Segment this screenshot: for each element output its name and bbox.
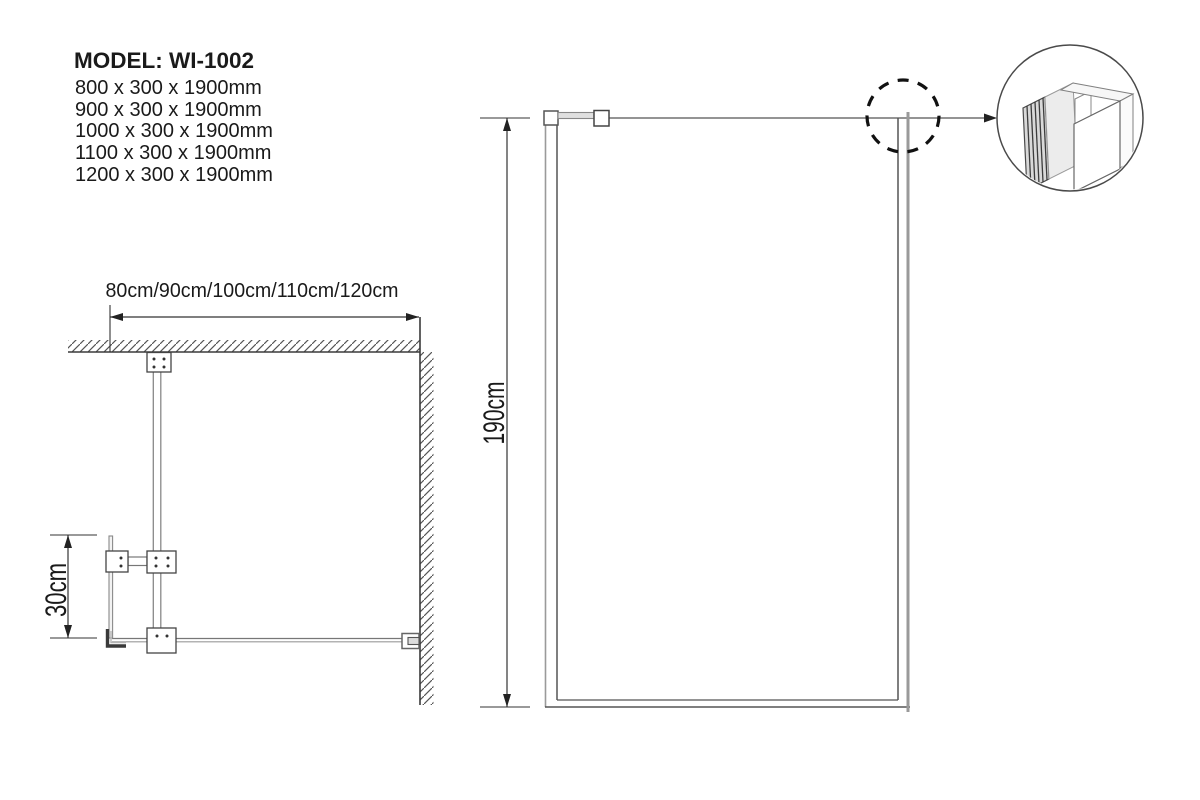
profile-top-cap [544, 111, 558, 125]
shower-screen-diagram: MODEL: WI-1002 800 x 300 x 1900mm 900 x … [0, 0, 1200, 800]
arrowhead-left-icon [110, 313, 123, 321]
size-option: 1200 x 300 x 1900mm [75, 164, 273, 186]
arrowhead-down-icon [503, 694, 511, 707]
wall-profile-isometric [1023, 83, 1133, 192]
support-bar-bracket-elevation [594, 111, 609, 127]
size-option: 1000 x 300 x 1900mm [75, 120, 273, 142]
arrowhead-up-icon [64, 535, 72, 548]
return-panel-bracket [106, 551, 128, 572]
wall-profile-plan [402, 634, 419, 649]
size-option: 1100 x 300 x 1900mm [75, 142, 271, 164]
height-dimension-label: 190cm [478, 382, 511, 445]
arrowhead-up-icon [503, 118, 511, 131]
title-block: MODEL: WI-1002 800 x 300 x 1900mm 900 x … [74, 48, 273, 186]
arrowhead-down-icon [64, 625, 72, 638]
return-depth-label: 30cm [40, 563, 73, 617]
support-bar-elevation [558, 113, 594, 119]
front-view: 190cm [478, 80, 997, 712]
wall-bracket [147, 353, 171, 373]
plan-view: 80cm/90cm/100cm/110cm/120cm 30cm [40, 280, 434, 705]
technical-drawing-page: MODEL: WI-1002 800 x 300 x 1900mm 900 x … [0, 0, 1200, 800]
size-option: 900 x 300 x 1900mm [75, 99, 262, 121]
size-option: 800 x 300 x 1900mm [75, 77, 262, 99]
panel-bracket [147, 628, 176, 653]
model-title: MODEL: WI-1002 [74, 48, 254, 73]
width-dimension-label: 80cm/90cm/100cm/110cm/120cm [106, 280, 399, 302]
detail-bubble [997, 45, 1143, 192]
right-wall-hatch [421, 352, 434, 705]
top-wall-hatch [68, 340, 420, 352]
arrowhead-right-icon [406, 313, 419, 321]
detail-arrowhead-icon [984, 114, 997, 123]
connector-bar-plan [128, 557, 147, 566]
support-bar-bracket [147, 551, 176, 573]
detail-locator-circle [867, 80, 939, 152]
return-depth-dimension: 30cm [40, 535, 97, 638]
height-dimension: 190cm [478, 118, 530, 707]
